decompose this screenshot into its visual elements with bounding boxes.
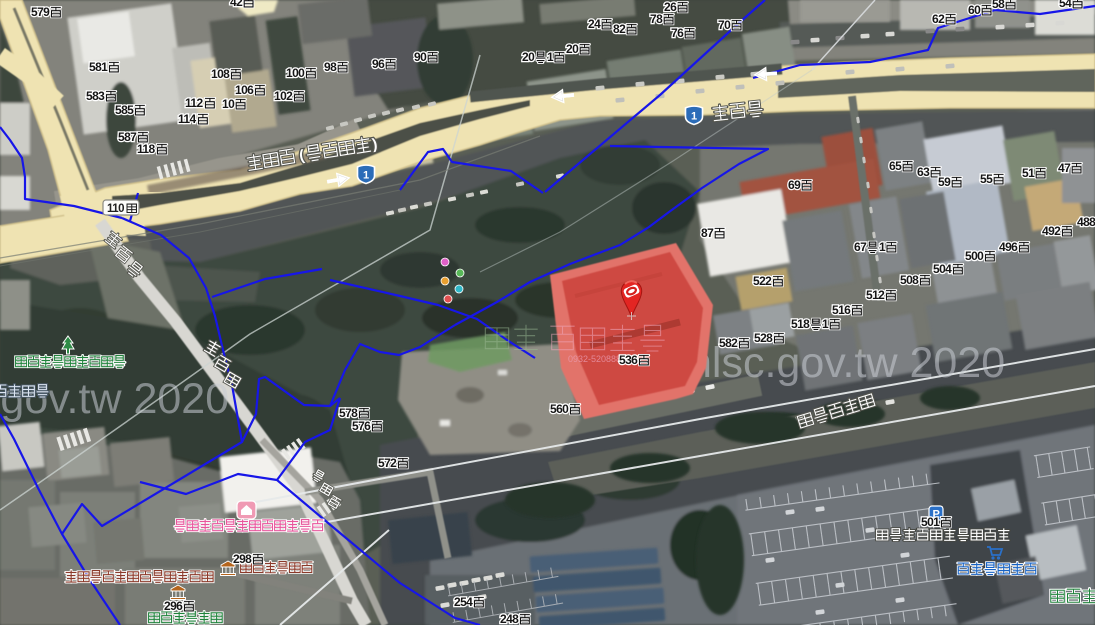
svg-text:63: 63	[917, 165, 930, 179]
svg-text:298: 298	[233, 552, 252, 566]
svg-text:576: 576	[352, 419, 371, 433]
svg-text:508: 508	[900, 273, 919, 287]
svg-text:248: 248	[500, 612, 519, 625]
svg-text:24: 24	[588, 17, 601, 31]
svg-text:112: 112	[185, 96, 203, 110]
svg-text:296: 296	[164, 599, 183, 613]
svg-text:500: 500	[965, 249, 984, 263]
svg-text:26: 26	[664, 0, 677, 14]
svg-text:58: 58	[992, 0, 1005, 11]
svg-text:90: 90	[414, 50, 427, 64]
svg-text:114: 114	[178, 112, 196, 126]
svg-text:76: 76	[671, 26, 684, 40]
svg-text:55: 55	[980, 172, 993, 186]
svg-text:42: 42	[230, 0, 243, 9]
svg-text:54: 54	[1059, 0, 1072, 10]
svg-text:96: 96	[372, 57, 385, 71]
svg-text:1: 1	[822, 317, 829, 331]
svg-text:67: 67	[854, 240, 867, 254]
svg-text:512: 512	[866, 288, 885, 302]
svg-text:1: 1	[547, 50, 554, 64]
svg-text:522: 522	[753, 274, 772, 288]
svg-text:118: 118	[137, 142, 155, 156]
svg-text:488: 488	[1077, 215, 1095, 229]
svg-text:20: 20	[566, 42, 579, 56]
svg-text:82: 82	[613, 22, 626, 36]
svg-text:10: 10	[222, 97, 235, 111]
svg-text:587: 587	[118, 130, 137, 144]
svg-text:578: 578	[339, 406, 358, 420]
svg-text:516: 516	[832, 303, 851, 317]
svg-text:47: 47	[1058, 161, 1071, 175]
svg-text:98: 98	[324, 60, 337, 74]
svg-text:582: 582	[719, 336, 738, 350]
svg-text:583: 583	[86, 89, 105, 103]
svg-text:492: 492	[1042, 224, 1061, 238]
svg-text:20: 20	[522, 50, 535, 64]
svg-text:62: 62	[932, 12, 945, 26]
svg-text:78: 78	[650, 12, 663, 26]
svg-text:65: 65	[889, 159, 902, 173]
svg-text:501: 501	[921, 515, 940, 529]
svg-text:560: 560	[550, 402, 569, 416]
svg-text:108: 108	[211, 67, 230, 81]
svg-text:528: 528	[754, 331, 773, 345]
svg-text:102: 102	[274, 89, 293, 103]
svg-text:581: 581	[89, 60, 108, 74]
svg-text:1: 1	[691, 111, 697, 123]
svg-text:579: 579	[31, 5, 50, 19]
svg-text:110: 110	[107, 203, 124, 215]
svg-text:1: 1	[363, 170, 369, 182]
svg-text:87: 87	[701, 226, 714, 240]
svg-text:59: 59	[938, 175, 951, 189]
svg-text:504: 504	[933, 262, 952, 276]
svg-text:51: 51	[1022, 166, 1035, 180]
svg-text:496: 496	[999, 240, 1018, 254]
svg-text:1: 1	[879, 240, 886, 254]
svg-text:518: 518	[791, 317, 810, 331]
svg-text:585: 585	[115, 103, 134, 117]
svg-text:60: 60	[968, 3, 981, 17]
svg-text:70: 70	[718, 18, 731, 32]
svg-text:69: 69	[788, 178, 801, 192]
svg-text:536: 536	[619, 353, 638, 367]
svg-text:100: 100	[286, 66, 305, 80]
svg-text:nlsc.gov.tw 2020: nlsc.gov.tw 2020	[0, 375, 229, 423]
svg-text:106: 106	[235, 83, 254, 97]
svg-text:254: 254	[454, 595, 473, 609]
svg-text:572: 572	[378, 456, 397, 470]
